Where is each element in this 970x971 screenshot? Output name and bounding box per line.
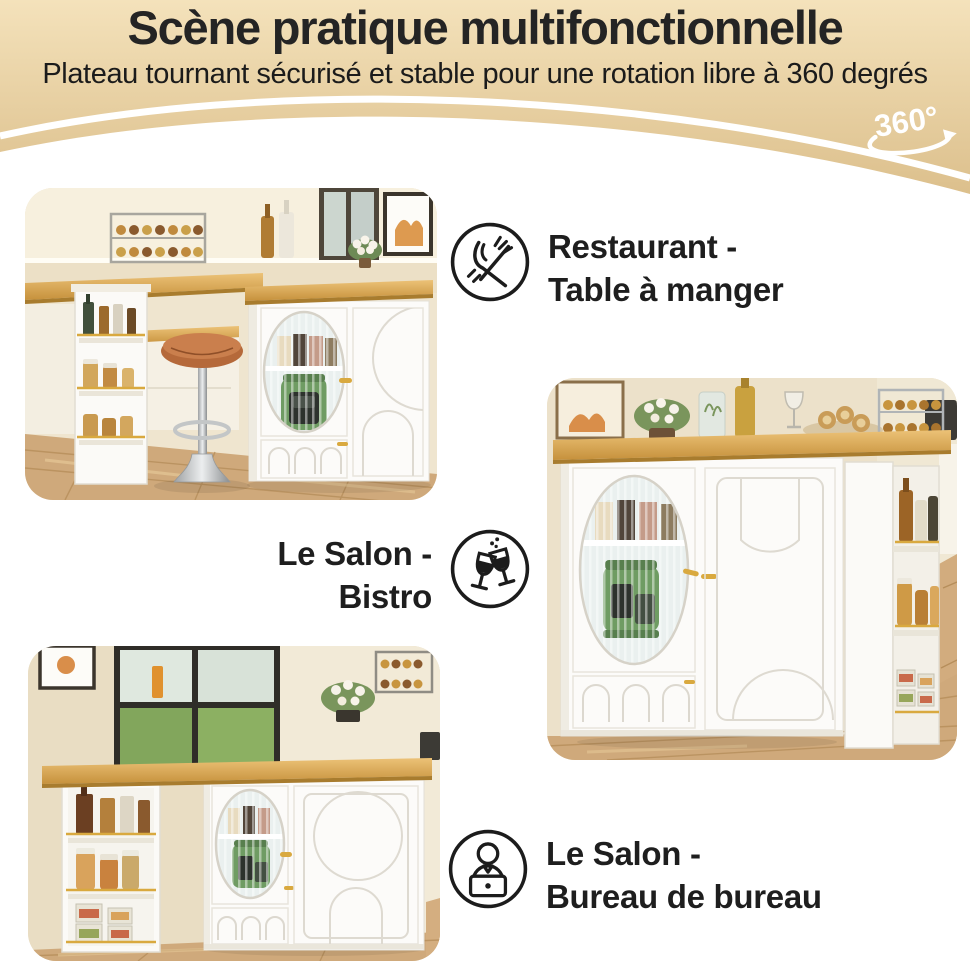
rotation-360-label: 360° [872,99,941,144]
caption-bistro-line1: Le Salon - [238,532,432,575]
caption-dining: Restaurant - Table à manger [449,221,783,311]
product-photo-bistro [547,378,957,760]
rotation-360-icon: 360° [854,94,960,162]
page-subtitle: Plateau tournant sécurisé et stable pour… [0,57,970,91]
caption-office-text: Le Salon - Bureau de bureau [546,828,822,918]
caption-bistro-line2: Bistro [238,575,432,618]
header-banner: Scène pratique multifonctionnelle Platea… [0,0,970,218]
caption-office-line2: Bureau de bureau [546,875,822,918]
caption-bistro-text: Le Salon - Bistro [238,528,432,618]
caption-dining-line1: Restaurant - [548,225,783,268]
fork-knife-icon [449,221,531,303]
person-laptop-icon [447,828,529,910]
page-title: Scène pratique multifonctionnelle [0,1,970,55]
caption-dining-text: Restaurant - Table à manger [548,221,783,311]
caption-bistro: Le Salon - Bistro [238,528,531,618]
product-photo-office [28,646,440,961]
caption-office: Le Salon - Bureau de bureau [447,828,822,918]
caption-dining-line2: Table à manger [548,268,783,311]
product-infographic: Scène pratique multifonctionnelle Platea… [0,0,970,971]
caption-office-line1: Le Salon - [546,832,822,875]
wine-glasses-icon [449,528,531,610]
product-photo-dining [25,188,437,500]
